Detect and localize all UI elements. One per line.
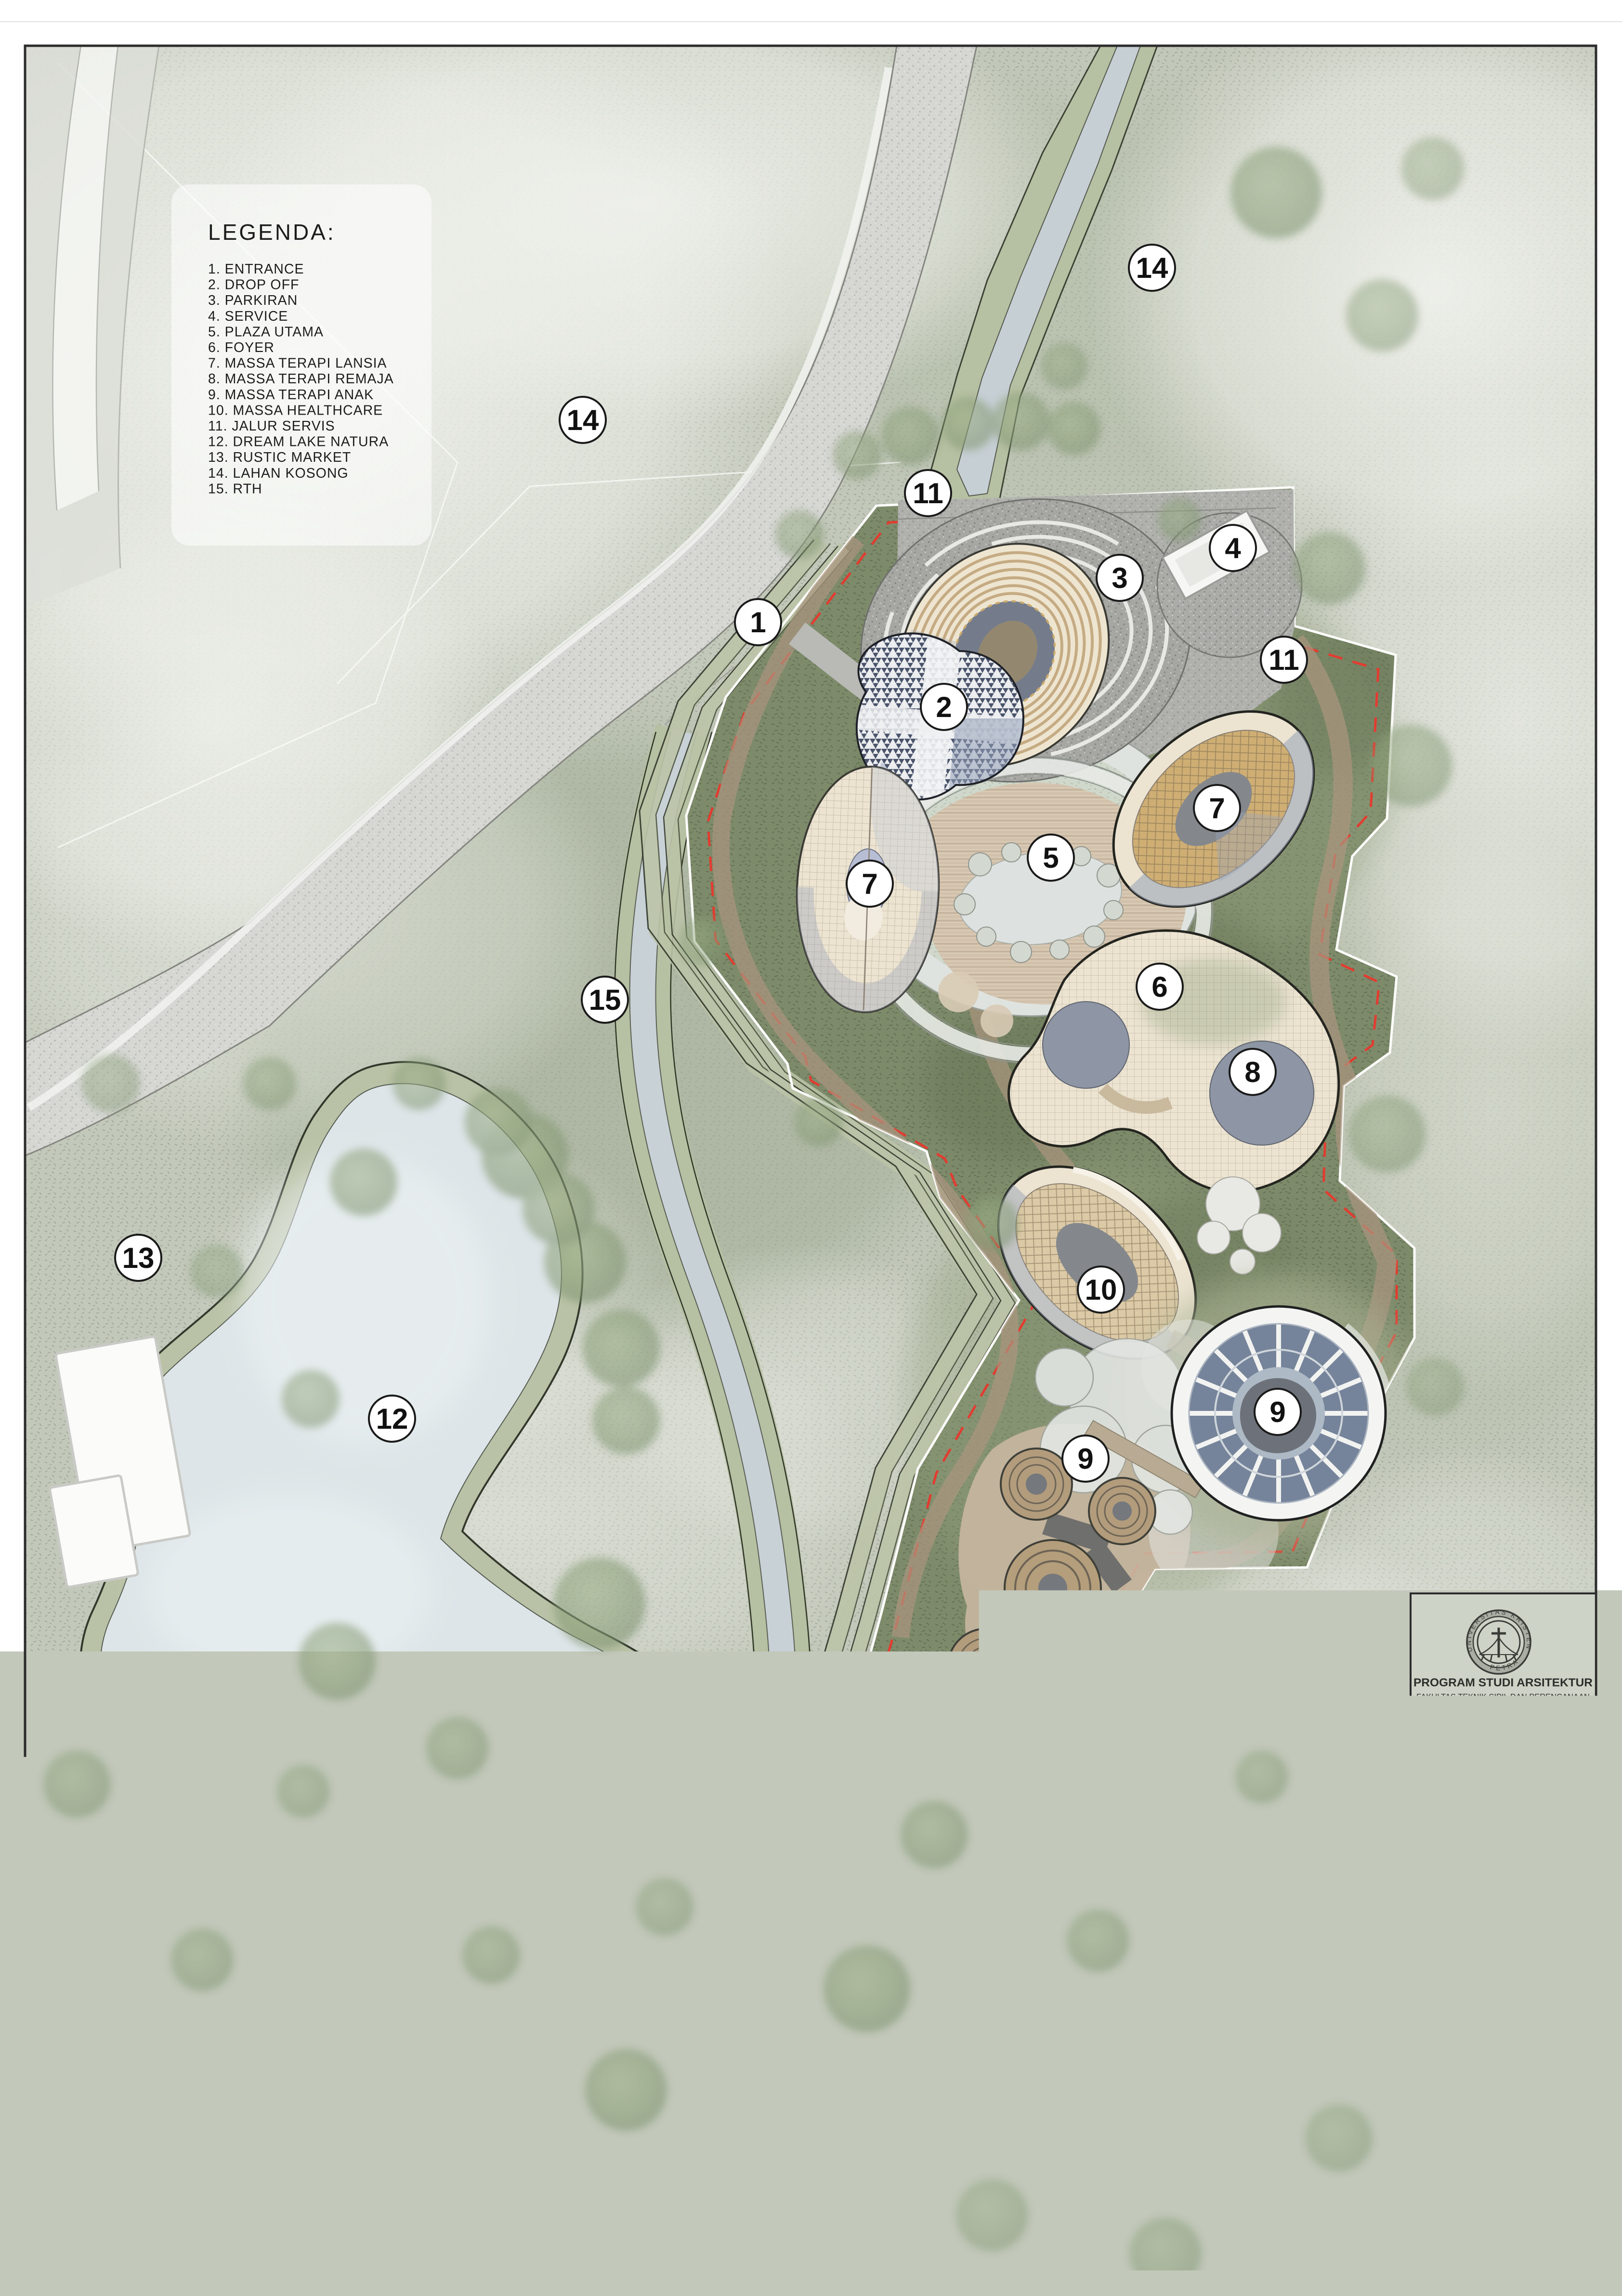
svg-text:UNIVERSITAS KRISTEN PETRA: UNIVERSITAS KRISTEN PETRA: [1444, 1703, 1562, 1712]
svg-text:14: 14: [567, 404, 599, 436]
svg-text:7. MASSA TERAPI LANSIA: 7. MASSA TERAPI LANSIA: [208, 356, 387, 371]
svg-text:9. MASSA TERAPI ANAK: 9. MASSA TERAPI ANAK: [208, 387, 374, 403]
svg-text:4. SERVICE: 4. SERVICE: [208, 309, 288, 324]
svg-text:6. FOYER: 6. FOYER: [208, 340, 275, 355]
svg-text:1:600: 1:600: [1419, 1932, 1452, 1946]
svg-text:N: N: [212, 1900, 244, 1949]
svg-text:13. RUSTIC MARKET: 13. RUSTIC MARKET: [208, 450, 351, 465]
svg-text:TANGGAL PENGUMPULAN: TANGGAL PENGUMPULAN: [1419, 2095, 1514, 2103]
svg-text:JOCELYNE ALESIA: JOCELYNE ALESIA: [1419, 1976, 1535, 1991]
svg-text:5: 5: [1043, 842, 1059, 874]
svg-text:10: 10: [1085, 1274, 1117, 1306]
svg-text:9 Juni 2025: 9 Juni 2025: [1419, 2109, 1487, 2123]
svg-text:SURABAYA: SURABAYA: [1467, 1822, 1539, 1837]
svg-text:FAKULTAS TEKNIK SIPIL DAN PERE: FAKULTAS TEKNIK SIPIL DAN PERENCANAAN: [1416, 1693, 1590, 1701]
svg-text:4: 4: [1225, 532, 1241, 564]
svg-text:11: 11: [913, 477, 943, 509]
svg-text:JUMLAH LEMBAR: JUMLAH LEMBAR: [1512, 2247, 1575, 2256]
svg-text:5. PLAZA UTAMA: 5. PLAZA UTAMA: [208, 324, 324, 339]
svg-text:7: 7: [862, 868, 877, 900]
svg-text:3: 3: [1112, 562, 1127, 594]
svg-text:13: 13: [122, 1242, 155, 1274]
svg-text:15. RTH: 15. RTH: [208, 481, 262, 496]
svg-text:LEGENDA:: LEGENDA:: [208, 220, 336, 245]
svg-text:SEMESTER GENAP 2024/2025: SEMESTER GENAP 2024/2025: [1420, 1765, 1586, 1778]
svg-text:9: 9: [1077, 1443, 1093, 1475]
svg-text:SITE PLAN: SITE PLAN: [1453, 1873, 1553, 1892]
svg-text:2. DROP OFF: 2. DROP OFF: [208, 277, 299, 293]
svg-text:MENTOR TUGAS AKHIR: MENTOR TUGAS AKHIR: [1419, 2050, 1504, 2058]
svg-text:14: 14: [1231, 1747, 1263, 1779]
svg-text:11. JALUR SERVIS: 11. JALUR SERVIS: [208, 418, 335, 434]
svg-text:03: 03: [1562, 2025, 1576, 2040]
svg-text:NRP: NRP: [1419, 1918, 1435, 1927]
svg-text:11: 11: [1269, 644, 1299, 676]
svg-text:SURABAYA: SURABAYA: [1482, 1714, 1524, 1722]
svg-text:PROGRAM STUDI ARSITEKTUR: PROGRAM STUDI ARSITEKTUR: [1413, 1676, 1593, 1689]
svg-text:14. LAHAN KOSONG: 14. LAHAN KOSONG: [208, 466, 349, 481]
svg-text:3. PARKIRAN: 3. PARKIRAN: [208, 293, 298, 308]
svg-text:NAMA: NAMA: [1419, 1962, 1441, 1970]
svg-text:6: 6: [1151, 971, 1167, 1003]
svg-text:15: 15: [589, 984, 621, 1016]
svg-text:PERIODE 92: PERIODE 92: [1469, 1752, 1537, 1765]
svg-text:12. DREAM LAKE NATURA: 12. DREAM LAKE NATURA: [208, 434, 389, 450]
svg-text:TUGAS AKHIR: TUGAS AKHIR: [1463, 1738, 1543, 1751]
svg-text:1: 1: [750, 606, 766, 639]
svg-text:PENGESAHAN: PENGESAHAN: [1419, 2137, 1471, 2145]
svg-text:JUDUL GAMBAR: JUDUL GAMBAR: [1419, 1853, 1478, 1862]
svg-text:B12210033: B12210033: [1419, 2024, 1486, 2038]
svg-text:2: 2: [936, 691, 952, 723]
svg-text:14: 14: [1136, 252, 1168, 284]
svg-text:Prof. Ir. Lilianny S. Arifin,: Prof. Ir. Lilianny S. Arifin, M.Sc., PhD…: [1419, 2068, 1586, 2079]
svg-text:10. MASSA HEALTHCARE: 10. MASSA HEALTHCARE: [208, 403, 383, 418]
svg-text:12: 12: [376, 1403, 408, 1435]
svg-text:FASILITAS TERAPI AIR DI: FASILITAS TERAPI AIR DI: [1423, 1806, 1583, 1821]
svg-text:SKALA 1:600: SKALA 1:600: [202, 2143, 282, 2158]
svg-text:8. MASSA TERAPI REMAJA: 8. MASSA TERAPI REMAJA: [208, 371, 394, 387]
svg-text:9: 9: [1269, 1396, 1285, 1428]
svg-text:7: 7: [1209, 792, 1225, 824]
svg-text:1. ENTRANCE: 1. ENTRANCE: [208, 261, 304, 277]
svg-text:JUDUL TUGAS: JUDUL TUGAS: [1419, 1788, 1471, 1796]
svg-text:NRP: NRP: [1419, 2010, 1435, 2019]
svg-text:8: 8: [1244, 1056, 1260, 1088]
svg-text:KELOMPOK: KELOMPOK: [1549, 2010, 1591, 2019]
svg-text:NOMOR LEMBAR: NOMOR LEMBAR: [1419, 2247, 1480, 2256]
svg-text:SITE PLAN: SITE PLAN: [202, 2104, 331, 2130]
